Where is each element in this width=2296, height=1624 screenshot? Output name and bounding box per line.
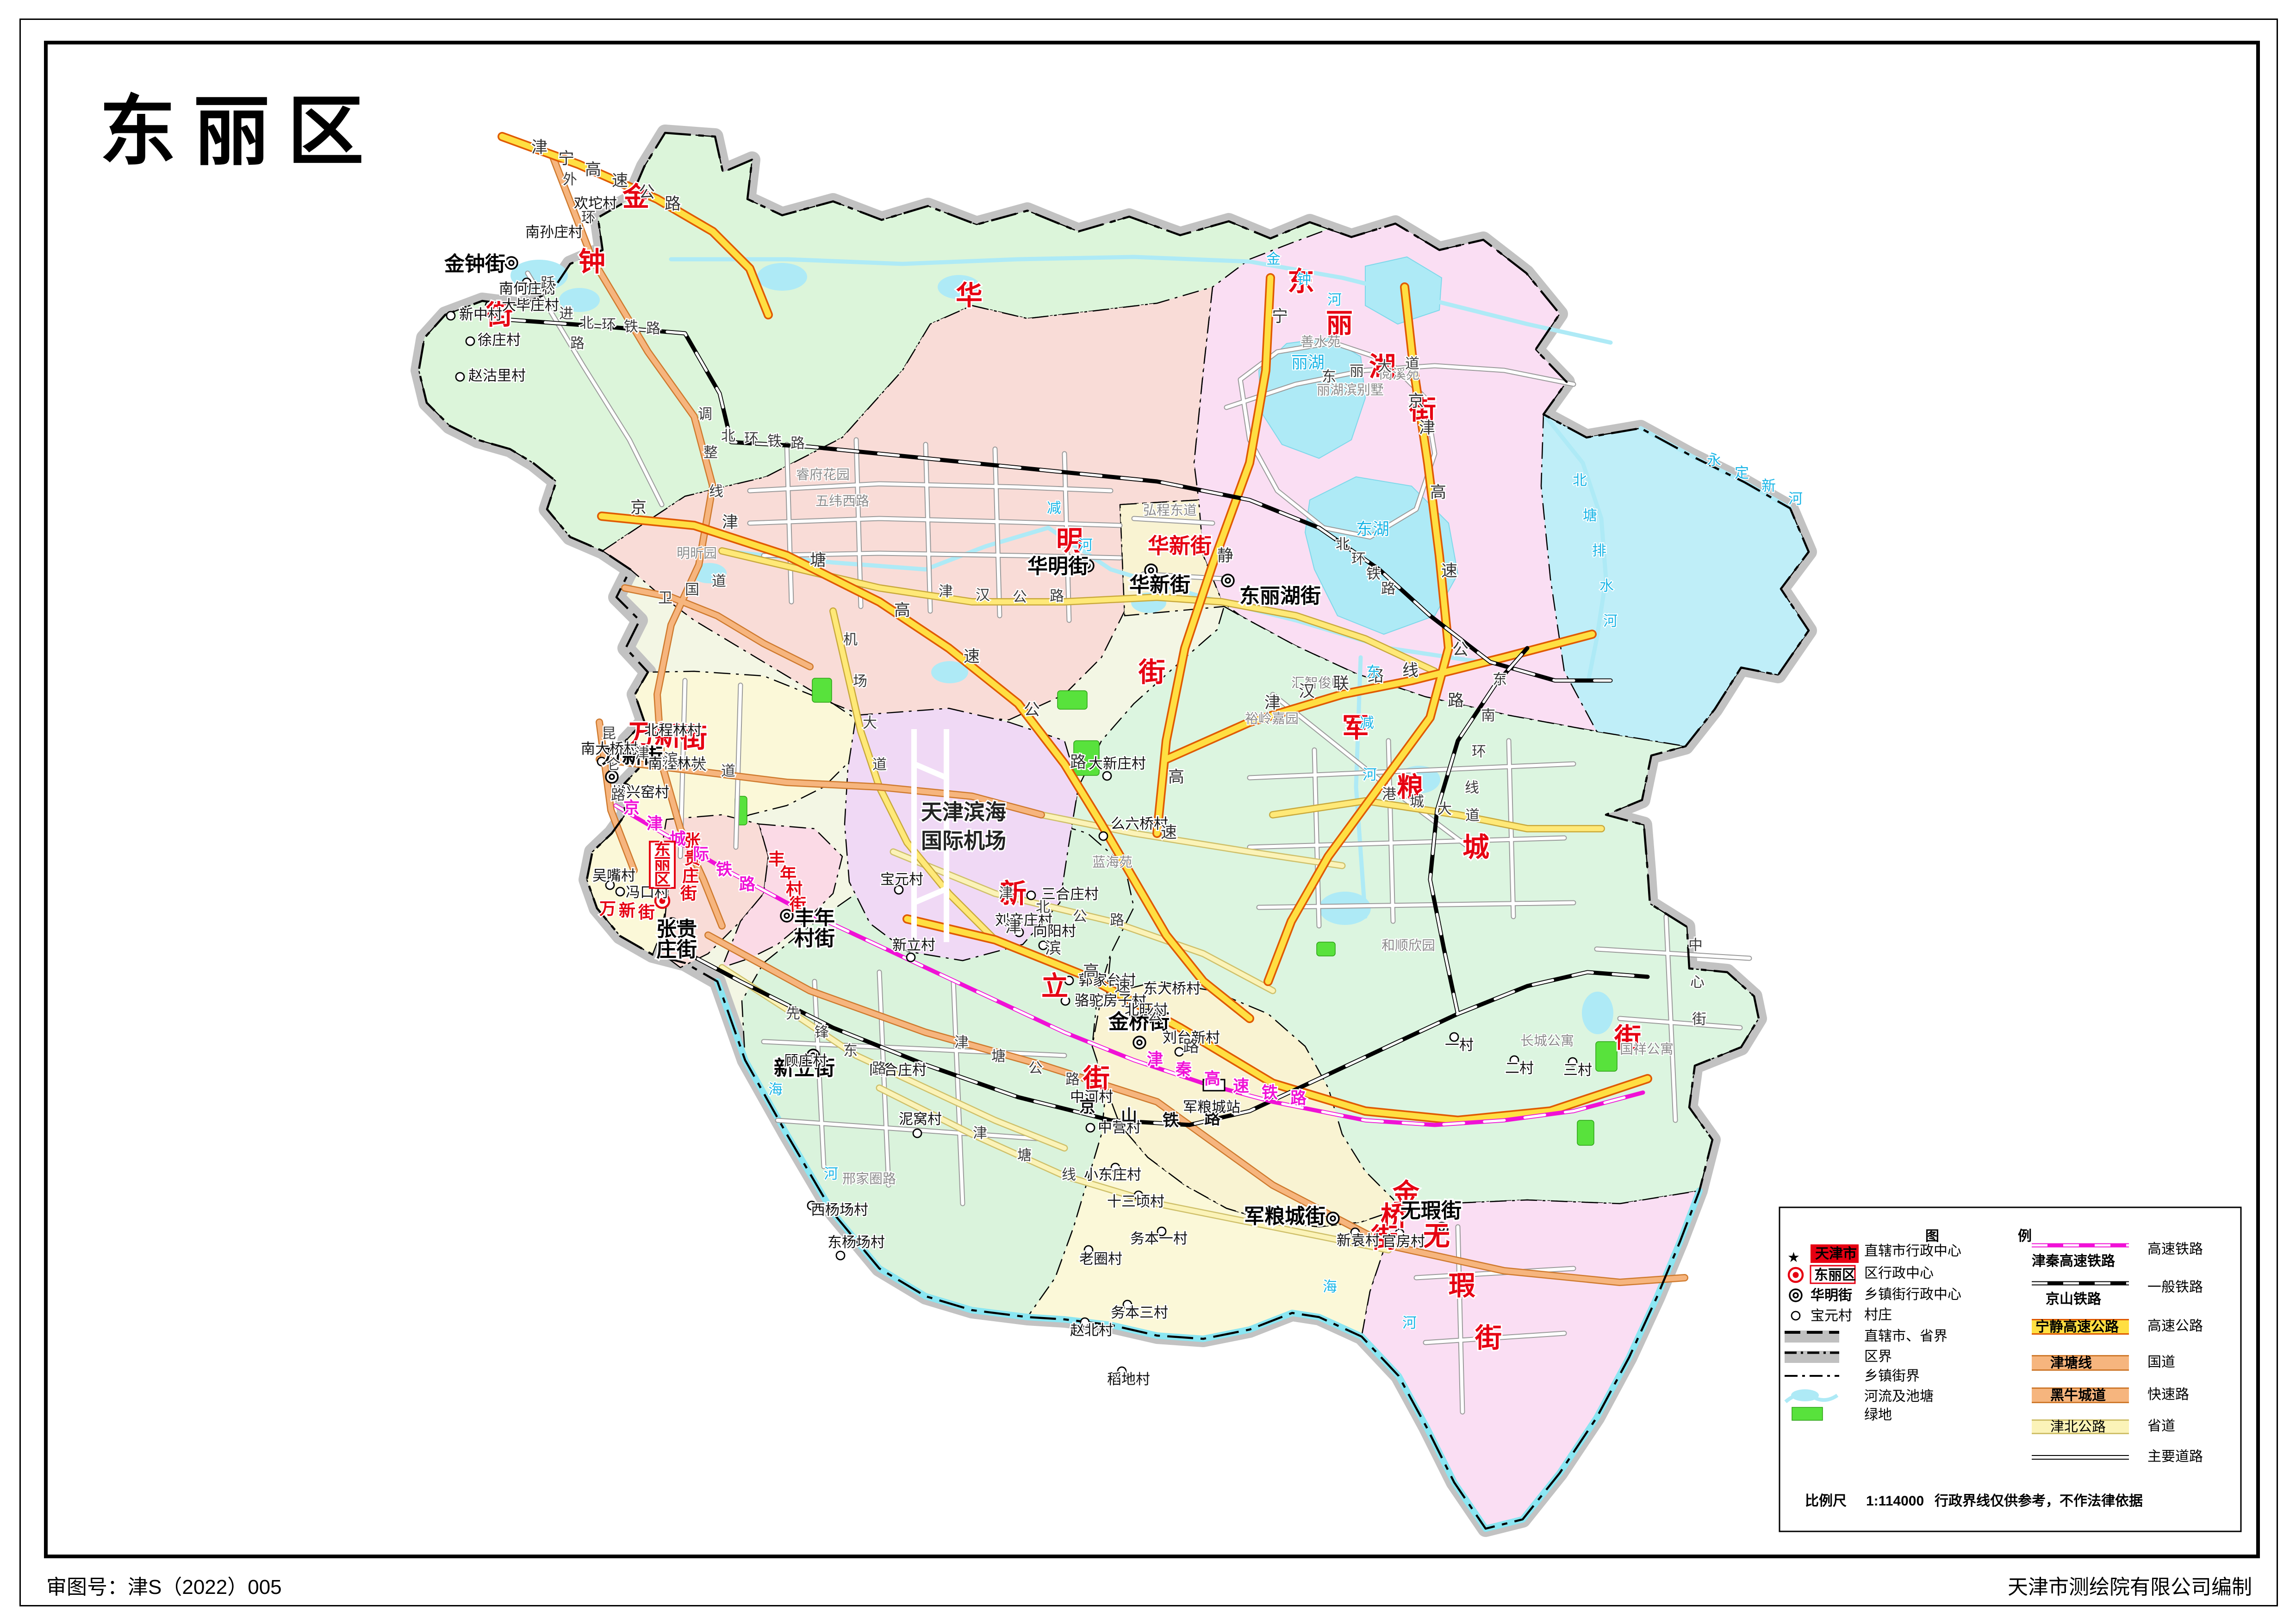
approval-number: 审图号：津S（2022）005 bbox=[46, 1570, 282, 1600]
river-name-char: 永 bbox=[1707, 452, 1721, 468]
legend-desc: 直辖市行政中心 bbox=[1864, 1243, 1961, 1259]
airport-label: 天津滨海 bbox=[921, 800, 1006, 824]
river-name-char: 河 bbox=[824, 1166, 838, 1182]
road-name-char: 高 bbox=[894, 601, 910, 619]
river-name-char: 排 bbox=[1592, 543, 1606, 559]
lake-label: 东湖 bbox=[1356, 519, 1389, 538]
road-name-char: 塘 bbox=[810, 551, 826, 569]
road-name-char: 滨 bbox=[664, 751, 678, 767]
village-label: 赵北村 bbox=[1070, 1322, 1113, 1338]
compound-label: 国祥公寓 bbox=[1620, 1042, 1674, 1057]
road-name-char: 路 bbox=[1050, 588, 1064, 604]
road-name-char: 塘 bbox=[1017, 1147, 1032, 1163]
road-name-char: 进 bbox=[559, 306, 573, 322]
road-name-char: 公 bbox=[1452, 641, 1468, 659]
road-name-char: 秦 bbox=[1176, 1061, 1192, 1079]
legend-desc: 一般铁路 bbox=[2147, 1280, 2203, 1295]
compound-label: 五纬西路 bbox=[815, 493, 869, 509]
road-name-char: 东 bbox=[843, 1043, 858, 1059]
road-name-char: 街 bbox=[1692, 1011, 1706, 1027]
village-label: 三村 bbox=[1563, 1062, 1592, 1078]
river-name-char: 河 bbox=[1788, 491, 1803, 507]
village-label: 稻地村 bbox=[1107, 1371, 1150, 1387]
road-name-char: 丽 bbox=[1350, 363, 1364, 379]
admin-center-label: 庄街 bbox=[656, 938, 697, 961]
legend-note: 行政界线仅供参考，不作法律依据 bbox=[1934, 1493, 2143, 1509]
legend-road-label: 津塘线 bbox=[2050, 1355, 2092, 1371]
road-name-char: 路 bbox=[1290, 1089, 1307, 1107]
village-label: 大新庄村 bbox=[1089, 756, 1146, 772]
road-name-char: 速 bbox=[1233, 1077, 1249, 1095]
legend-road-label: 黑牛城道 bbox=[2050, 1388, 2106, 1403]
river-name-char: 河 bbox=[1363, 767, 1377, 783]
road-name-char: 北 bbox=[1336, 536, 1350, 552]
road-name-char: 速 bbox=[1441, 562, 1457, 580]
road-name-char: 高 bbox=[1083, 962, 1099, 981]
village-label: 东杨场村 bbox=[828, 1234, 885, 1250]
road-name-char: 城 bbox=[1410, 793, 1424, 810]
subdistrict-name-label: 街 bbox=[1475, 1323, 1502, 1353]
village-label: 一村 bbox=[1445, 1037, 1474, 1053]
village-label: 西杨场村 bbox=[811, 1202, 868, 1218]
legend-desc: 区行政中心 bbox=[1864, 1266, 1934, 1281]
road-name-char: 汉 bbox=[976, 587, 990, 603]
road-name-char: 大 bbox=[692, 757, 707, 773]
village-label: 南孙庄村 bbox=[525, 224, 583, 240]
road-name-char: 京 bbox=[623, 799, 640, 817]
legend-desc: 省道 bbox=[2147, 1418, 2175, 1434]
road-name-char: 路 bbox=[646, 320, 660, 337]
road-name-char: 宁 bbox=[558, 150, 574, 168]
river-name-char: 河 bbox=[1327, 292, 1342, 308]
road-name-char: 整 bbox=[703, 444, 718, 461]
road-name-char: 路 bbox=[1183, 1037, 1199, 1056]
road-name-char: 公 bbox=[1147, 1006, 1163, 1024]
road-name-char: 汉 bbox=[1299, 682, 1315, 700]
road-name-char: 铁 bbox=[1163, 1112, 1179, 1130]
compound-label: 弘程东道 bbox=[1143, 503, 1197, 518]
road-name-char: 速 bbox=[612, 172, 628, 190]
road-name-char: 铁 bbox=[1366, 566, 1381, 582]
admin-center-label: 华新街 bbox=[1129, 574, 1190, 596]
road-name-char: 路 bbox=[872, 1060, 886, 1076]
subdistrict-name-label: 街 bbox=[680, 884, 697, 903]
compound-label: 邢家圈路 bbox=[842, 1171, 896, 1187]
road-name-char: 际 bbox=[693, 845, 709, 863]
road-name-char: 京 bbox=[1408, 392, 1424, 410]
legend-desc: 村庄 bbox=[1864, 1307, 1892, 1323]
road-name-char: 路 bbox=[739, 875, 756, 893]
road-name-char: 道 bbox=[872, 756, 887, 773]
road-name-char: 塘 bbox=[991, 1048, 1006, 1064]
village-label: 北程林村 bbox=[644, 722, 702, 738]
road-name-char: 高 bbox=[585, 161, 601, 179]
legend-hsr-label: 津秦高速铁路 bbox=[2032, 1254, 2116, 1269]
village-label: 大毕庄村 bbox=[502, 297, 559, 313]
legend-desc: 国道 bbox=[2147, 1355, 2175, 1370]
road-name-char: 环 bbox=[581, 209, 596, 225]
river-name-char: 河 bbox=[1603, 613, 1618, 629]
road-name-char: 津 bbox=[531, 138, 548, 156]
legend-title: 例 bbox=[2018, 1229, 2032, 1244]
admin-center-label: 丰年 bbox=[794, 907, 835, 930]
river-name-char: 东 bbox=[1366, 664, 1381, 680]
road-name-char: 津 bbox=[647, 815, 663, 833]
road-name-char: 东 bbox=[1493, 671, 1507, 687]
admin-center-label: 村街 bbox=[794, 927, 835, 950]
road-name-char: 路 bbox=[665, 195, 681, 213]
admin-center-label: 无瑕街 bbox=[1400, 1199, 1462, 1222]
road-name-char: 路 bbox=[570, 335, 585, 351]
legend-desc: 快速路 bbox=[2147, 1387, 2189, 1402]
road-name-char: 公 bbox=[639, 183, 655, 201]
river-name-char: 河 bbox=[1078, 537, 1093, 553]
road-name-char: 道 bbox=[712, 573, 726, 589]
road-name-char: 锋 bbox=[815, 1024, 829, 1040]
road-name-char: 宁 bbox=[1272, 307, 1288, 325]
road-name-char: 津 bbox=[999, 885, 1013, 901]
village-label: 么六桥村 bbox=[1111, 816, 1168, 832]
publisher: 天津市测绘院有限公司编制 bbox=[2008, 1570, 2252, 1600]
road-name-char: 中 bbox=[1688, 937, 1703, 953]
admin-center-label: 金钟街 bbox=[444, 253, 505, 275]
village-label: 赵沽里村 bbox=[468, 368, 526, 384]
road-name-char: 公 bbox=[1013, 589, 1027, 605]
road-name-char: 津 bbox=[722, 513, 738, 531]
legend-desc: 绿地 bbox=[1864, 1407, 1892, 1423]
road-name-char: 环 bbox=[602, 317, 616, 333]
legend-desc: 河流及池塘 bbox=[1864, 1389, 1934, 1404]
road-name-char: 大 bbox=[863, 715, 877, 731]
road-name-char: 铁 bbox=[767, 433, 782, 449]
road-name-char: 路 bbox=[1381, 581, 1395, 597]
legend-desc: 主要道路 bbox=[2147, 1449, 2203, 1464]
road-name-char: 联 bbox=[1333, 675, 1349, 693]
compound-label: 和顺欣园 bbox=[1381, 938, 1435, 953]
subdistrict-name-label: 街 bbox=[638, 903, 655, 922]
road-name-char: 速 bbox=[964, 648, 980, 666]
legend-village-label: 宝元村 bbox=[1811, 1308, 1852, 1324]
river-name-char: 海 bbox=[1323, 1279, 1337, 1295]
legend-desc: 直辖市、省界 bbox=[1864, 1329, 1948, 1344]
road-name-char: 路 bbox=[1065, 1071, 1080, 1087]
city-star-icon: ★ bbox=[1787, 1250, 1800, 1265]
village-label: 老圈村 bbox=[1079, 1251, 1122, 1267]
river-name-char: 河 bbox=[1402, 1315, 1417, 1331]
legend-desc: 乡镇街行政中心 bbox=[1864, 1287, 1961, 1302]
subdistrict-name-label: 城 bbox=[1462, 832, 1489, 862]
road-name-char: 北 bbox=[579, 315, 594, 331]
compound-label: 蓝海苑 bbox=[1092, 855, 1132, 870]
road-name-char: 北 bbox=[721, 428, 735, 444]
airport-label: 国际机场 bbox=[921, 829, 1006, 853]
road-name-char: 路 bbox=[1070, 753, 1086, 771]
road-name-char: 南 bbox=[1481, 707, 1495, 724]
village-label: 泥窝村 bbox=[899, 1111, 942, 1127]
road-name-char: 先 bbox=[786, 1006, 800, 1022]
subdistrict-name-label: 立 bbox=[1041, 971, 1068, 1001]
lake-label: 丽湖 bbox=[1291, 353, 1325, 372]
legend-desc: 高速公路 bbox=[2147, 1318, 2203, 1334]
admin-center-label: 东丽湖街 bbox=[1239, 585, 1321, 607]
river-name-char: 新 bbox=[1761, 478, 1776, 494]
compound-label: 明昕园 bbox=[677, 546, 717, 561]
map-page: 东丽区 金钟街华明街华新街东丽湖街军粮城街万新街万新街新立街金桥街无瑕街张贵庄街… bbox=[0, 0, 2296, 1624]
road-name-char: 铁 bbox=[1262, 1084, 1278, 1102]
village-label: 新中村 bbox=[459, 306, 502, 323]
road-name-char: 津 bbox=[939, 583, 953, 600]
road-name-char: 滨 bbox=[1045, 939, 1061, 957]
road-name-char: 铁 bbox=[624, 319, 638, 335]
road-name-char: 速 bbox=[1114, 977, 1131, 995]
legend-town-label: 华明街 bbox=[1811, 1288, 1852, 1303]
road-name-char: 线 bbox=[709, 483, 723, 500]
village-label: 小东庄村 bbox=[1084, 1167, 1141, 1183]
legend-desc: 高速铁路 bbox=[2147, 1242, 2203, 1257]
subdistrict-name-label: 丽 bbox=[1326, 308, 1353, 338]
legend-city-label: 天津市 bbox=[1815, 1246, 1857, 1262]
road-name-char: 环 bbox=[744, 431, 759, 447]
road-name-char: 公 bbox=[1024, 701, 1040, 719]
village-label: 徐庄村 bbox=[478, 332, 521, 348]
road-name-char: 京 bbox=[1079, 1097, 1095, 1116]
compound-label: 长城公寓 bbox=[1520, 1033, 1574, 1049]
village-label: 南大桥村 bbox=[581, 741, 638, 757]
road-name-char: 场 bbox=[853, 673, 867, 689]
road-name-char: 路 bbox=[1110, 912, 1124, 928]
village-label: 向阳村 bbox=[1033, 923, 1076, 939]
village-label: 吴嘴村 bbox=[592, 868, 635, 884]
subdistrict-name-label: 华 bbox=[956, 281, 983, 311]
river-name-char: 定 bbox=[1735, 465, 1749, 481]
river-name-char: 金 bbox=[1266, 251, 1281, 267]
scale-value: 1:114000 bbox=[1866, 1493, 1924, 1509]
road-name-char: 卫 bbox=[658, 590, 672, 606]
road-name-char: 津 bbox=[1419, 419, 1435, 437]
river-name-char: 钟 bbox=[1297, 271, 1311, 287]
compound-label: 善水苑 bbox=[1300, 334, 1341, 350]
station-label: 军粮城站 bbox=[1183, 1099, 1240, 1115]
road-name-char: 高 bbox=[1168, 768, 1184, 786]
road-name-char: 道 bbox=[721, 763, 735, 779]
road-name-char: 京 bbox=[630, 499, 647, 517]
road-name-char: 公 bbox=[1028, 1060, 1043, 1076]
road-name-char: 铁 bbox=[716, 861, 732, 879]
village-label: 新袁村 bbox=[1337, 1232, 1380, 1249]
road-name-char: 环 bbox=[1472, 743, 1486, 760]
road-name-char: 公 bbox=[1073, 908, 1087, 924]
village-label: 东大桥村 bbox=[1143, 981, 1201, 997]
subdistrict-name-label: 庄 bbox=[682, 866, 699, 885]
road-name-char: 北 bbox=[1036, 899, 1050, 915]
admin-center-label: 军粮城街 bbox=[1244, 1205, 1325, 1228]
road-name-char: 津 bbox=[1264, 694, 1281, 712]
road-name-char: 速 bbox=[1161, 824, 1177, 842]
legend-district-label: 东丽区 bbox=[1814, 1267, 1856, 1283]
river-name-char: 减 bbox=[1360, 715, 1374, 731]
subdistrict-name-label: 街 bbox=[1138, 657, 1165, 687]
district-map-canvas: 金钟街华明街华新街东丽湖街军粮城街万新街万新街新立街金桥街无瑕街张贵庄街丰年村街… bbox=[0, 0, 2296, 1624]
road-name-char: 跃 bbox=[541, 275, 555, 291]
legend-hwy-label: 宁静高速公路 bbox=[2035, 1319, 2119, 1335]
road-name-char: 国 bbox=[685, 581, 699, 598]
road-name-char: 高 bbox=[1204, 1070, 1220, 1088]
road-name-char: 津 bbox=[954, 1034, 969, 1050]
subdistrict-name-label: 瑕 bbox=[1449, 1271, 1475, 1301]
road-name-char: 路 bbox=[790, 435, 805, 451]
river-name-char: 塘 bbox=[1583, 507, 1597, 524]
road-name-char: 仑 bbox=[606, 756, 621, 773]
road-name-char: 道 bbox=[1465, 807, 1480, 824]
admin-center-label: 华明街 bbox=[1027, 555, 1089, 578]
subdistrict-name-label: 华新街 bbox=[1148, 534, 1212, 558]
road-name-char: 昆 bbox=[602, 725, 616, 742]
subdistrict-name-label: 无 bbox=[1423, 1221, 1450, 1251]
road-name-char: 道 bbox=[1405, 356, 1419, 372]
road-name-char: 环 bbox=[1351, 551, 1366, 567]
village-label: 宝元村 bbox=[880, 871, 923, 887]
legend-desc: 乡镇街界 bbox=[1864, 1368, 1920, 1384]
road-name-char: 线 bbox=[1465, 780, 1479, 796]
river-name-char: 北 bbox=[1573, 472, 1587, 488]
river-name-char: 减 bbox=[1047, 500, 1061, 516]
road-name-char: 港 bbox=[1382, 786, 1396, 802]
road-name-char: 山 bbox=[1121, 1107, 1137, 1125]
road-name-char: 大 bbox=[1377, 358, 1392, 375]
river-name-char: 水 bbox=[1599, 578, 1614, 594]
road-name-char: 高 bbox=[1430, 483, 1446, 501]
village-label: 二村 bbox=[1505, 1060, 1534, 1076]
road-name-char: 线 bbox=[1062, 1167, 1076, 1183]
compound-label: 睿府花园 bbox=[796, 467, 850, 482]
legend-title: 图 bbox=[1925, 1229, 1939, 1244]
legend: 图例★天津市直辖市行政中心东丽区区行政中心华明街乡镇街行政中心宝元村村庄直辖市、… bbox=[1780, 1207, 2241, 1531]
road-name-char: 津 bbox=[1147, 1050, 1163, 1068]
compound-label: 裕岭嘉园 bbox=[1245, 711, 1299, 726]
subdistrict-name-label: 万 bbox=[599, 899, 616, 918]
scale-label: 比例尺 bbox=[1805, 1493, 1847, 1509]
village-label: 务本三村 bbox=[1111, 1305, 1168, 1321]
road-name-char: 津 bbox=[973, 1125, 987, 1141]
district-center-name: 区 bbox=[654, 870, 671, 889]
village-label: 务本一村 bbox=[1130, 1230, 1188, 1247]
village-label: 新立村 bbox=[892, 937, 935, 953]
road-name-char: 线 bbox=[1402, 662, 1419, 680]
road-name-char: 机 bbox=[843, 631, 858, 648]
village-label: 官房村 bbox=[1382, 1233, 1425, 1249]
admin-center-label: 张贵 bbox=[656, 918, 697, 941]
legend-rail-label: 京山铁路 bbox=[2046, 1291, 2102, 1307]
road-name-char: 静 bbox=[1217, 547, 1233, 565]
legend-desc: 区界 bbox=[1864, 1349, 1892, 1364]
road-name-char: 路 bbox=[1448, 692, 1464, 710]
subdistrict-name-label: 钟 bbox=[579, 247, 605, 277]
road-name-char: 外 bbox=[563, 171, 577, 187]
road-name-char: 津 bbox=[1005, 918, 1021, 936]
legend-road-label: 津北公路 bbox=[2050, 1419, 2106, 1435]
river-name-char: 海 bbox=[768, 1081, 783, 1098]
road-name-char: 心 bbox=[1690, 974, 1705, 990]
village-label: 十三顷村 bbox=[1107, 1193, 1164, 1210]
road-name-char: 津 bbox=[635, 745, 649, 762]
village-label: 顾庄村 bbox=[784, 1053, 827, 1069]
road-name-char: 调 bbox=[698, 406, 712, 422]
subdistrict-name-label: 新 bbox=[619, 901, 635, 920]
road-name-char: 大 bbox=[1437, 801, 1452, 817]
